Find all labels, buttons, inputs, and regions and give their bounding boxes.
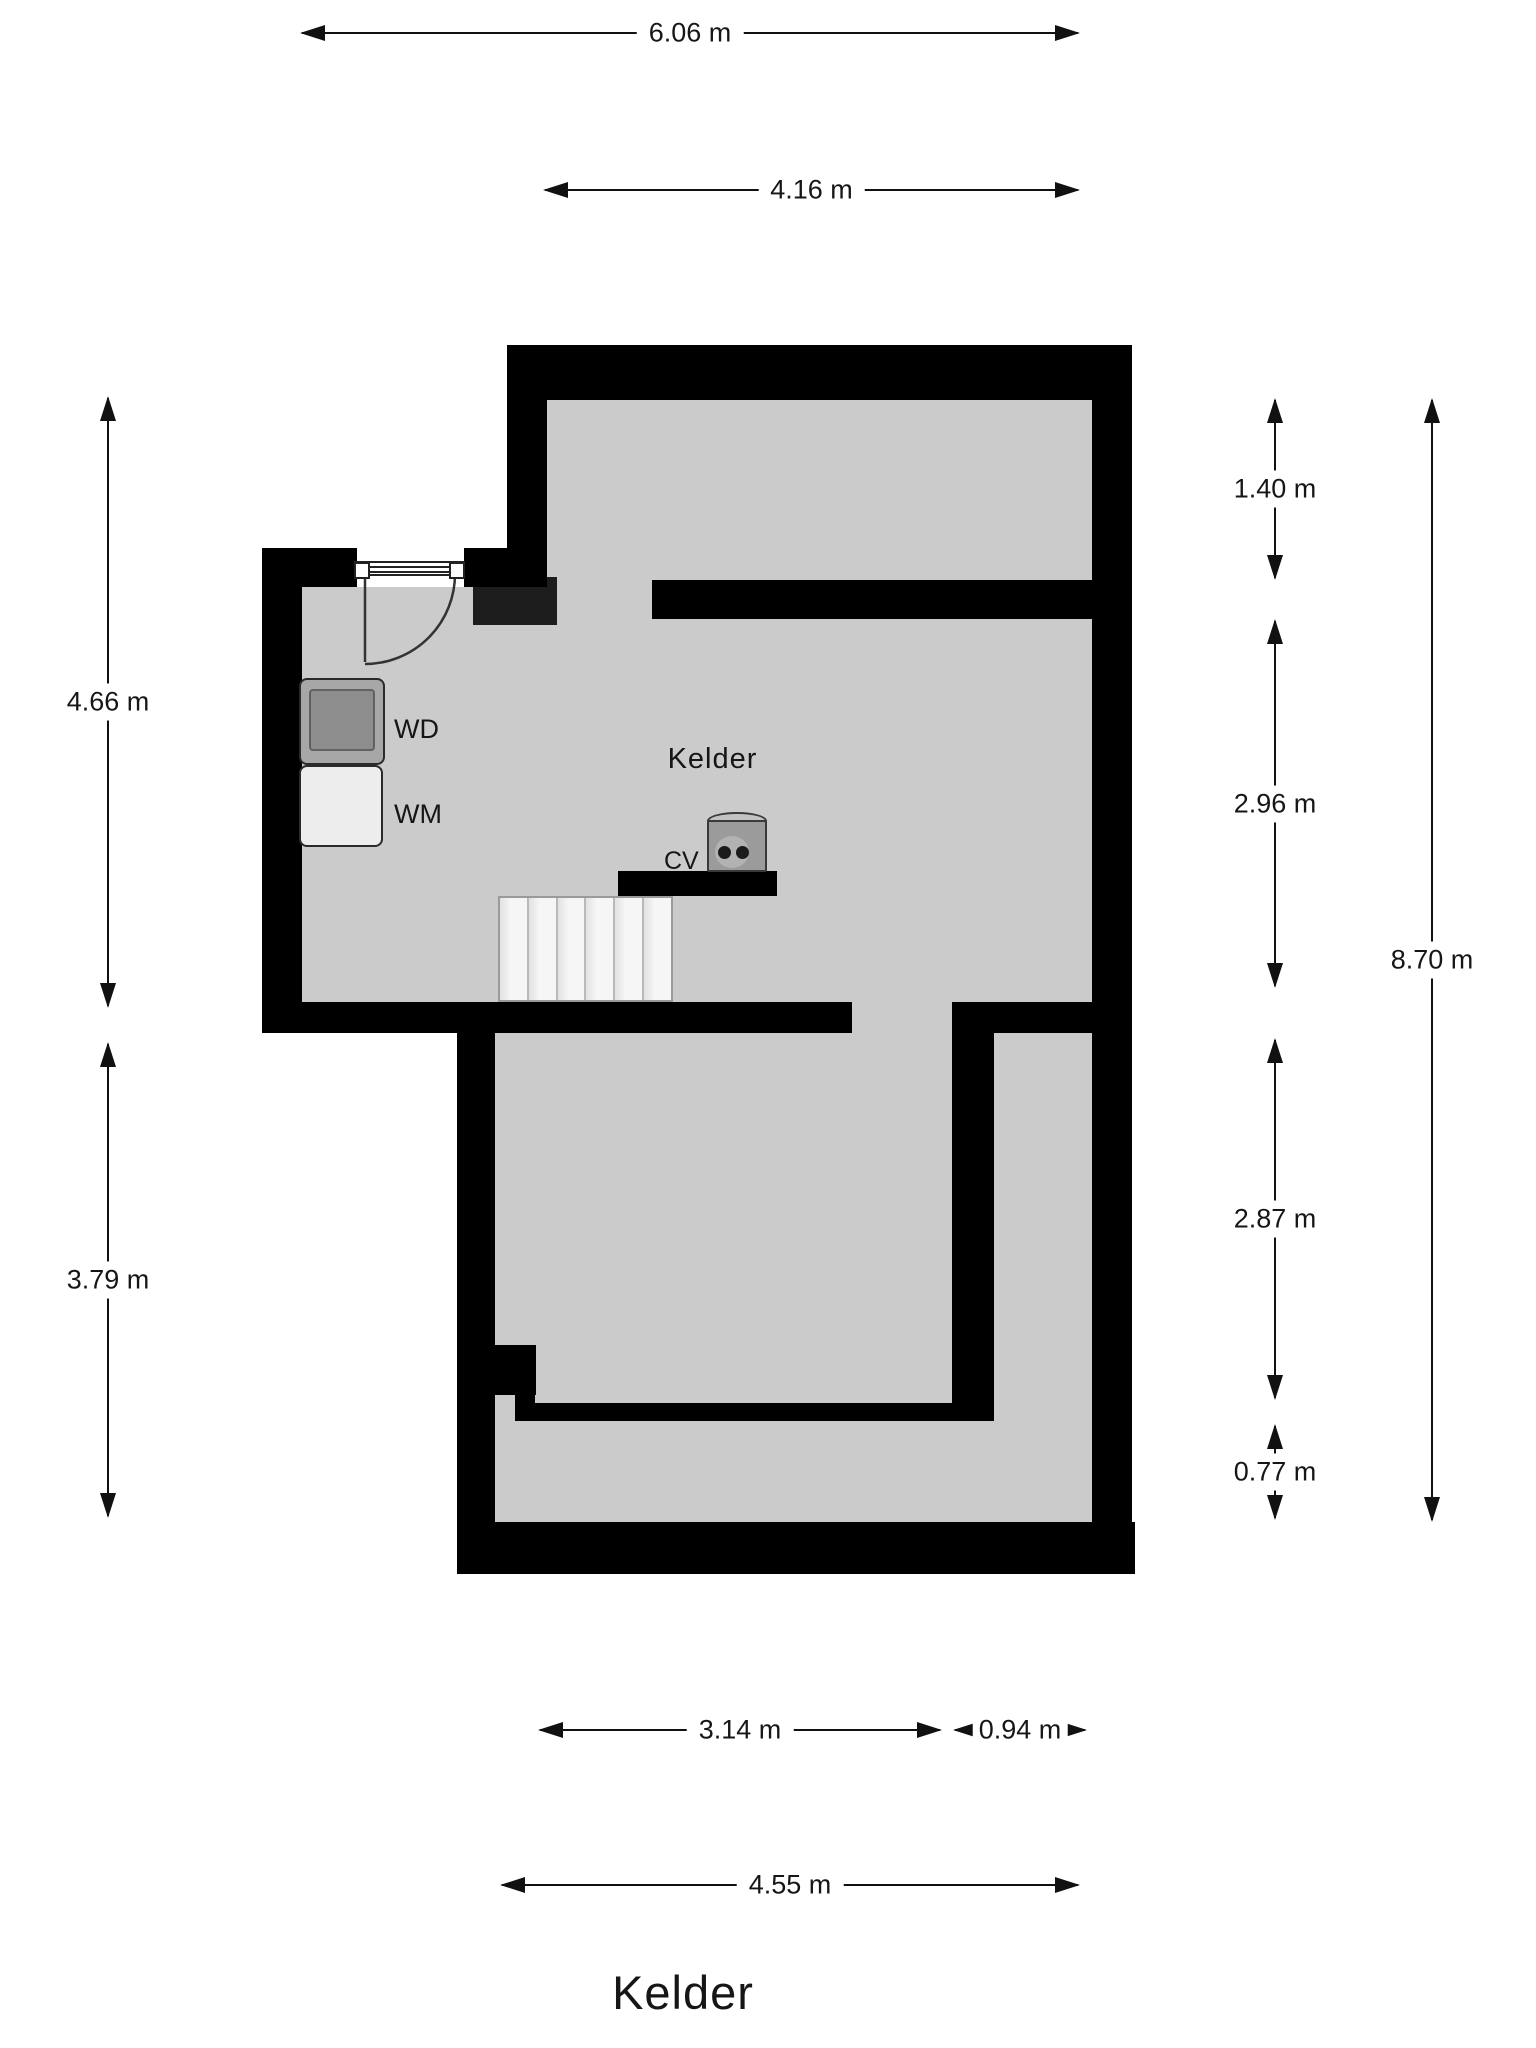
boiler-label: CV bbox=[664, 847, 699, 876]
dimension-label: 4.55 m bbox=[737, 1867, 844, 1904]
wall-top bbox=[507, 345, 1132, 400]
washing-machine-label: WM bbox=[394, 799, 442, 830]
floor-doorway-gap bbox=[852, 1002, 952, 1033]
dimension-label: 4.66 m bbox=[55, 684, 162, 721]
door-jamb-icon bbox=[449, 562, 465, 579]
dimension-right-3: 2.87 m bbox=[1274, 1040, 1276, 1398]
dimension-left-upper: 4.66 m bbox=[107, 398, 109, 1006]
dimension-left-lower: 3.79 m bbox=[107, 1044, 109, 1516]
dimension-label: 0.94 m bbox=[973, 1712, 1068, 1749]
door-jamb-icon bbox=[354, 562, 370, 579]
dimension-label: 0.77 m bbox=[1222, 1454, 1329, 1491]
wall-lower-left bbox=[457, 1002, 495, 1574]
dimension-label: 2.96 m bbox=[1222, 785, 1329, 822]
floor-lower-room bbox=[495, 1033, 1092, 1522]
dimension-label: 1.40 m bbox=[1222, 471, 1329, 508]
washer-dryer-drum-icon bbox=[309, 689, 375, 751]
dimension-label: 2.87 m bbox=[1222, 1201, 1329, 1238]
boiler-knob-icon bbox=[718, 846, 731, 859]
floorplan-canvas: WD WM CV Kelder Kelder 6.06 m 4.16 m 4.6… bbox=[0, 0, 1536, 2048]
dimension-right-1: 1.40 m bbox=[1274, 400, 1276, 578]
door-frame bbox=[354, 561, 465, 576]
dimension-right-total: 8.70 m bbox=[1431, 400, 1433, 1520]
page-title: Kelder bbox=[533, 1965, 833, 2020]
washer-dryer-label: WD bbox=[394, 714, 439, 745]
door-frame-line bbox=[356, 566, 463, 568]
stair-tread bbox=[586, 898, 615, 1000]
dimension-label: 4.16 m bbox=[758, 172, 865, 209]
dimension-right-4: 0.77 m bbox=[1274, 1426, 1276, 1518]
stair-tread bbox=[529, 898, 558, 1000]
wall-inner-right bbox=[952, 1002, 994, 1421]
dimension-right-2: 2.96 m bbox=[1274, 621, 1276, 986]
stairs bbox=[498, 896, 673, 1002]
dimension-label: 8.70 m bbox=[1379, 942, 1486, 979]
dimension-top-upper-room: 4.16 m bbox=[545, 189, 1078, 191]
washing-machine-unit bbox=[299, 765, 383, 847]
wall-notch bbox=[488, 1345, 536, 1395]
wall-inner-left-thin bbox=[515, 1393, 535, 1421]
dimension-bottom-corridor: 0.94 m bbox=[955, 1729, 1085, 1731]
dimension-bottom-total: 4.55 m bbox=[502, 1884, 1078, 1886]
stair-tread bbox=[500, 898, 529, 1000]
wall-middle-horizontal bbox=[262, 1002, 852, 1033]
stair-tread bbox=[558, 898, 587, 1000]
stair-tread bbox=[644, 898, 671, 1000]
dimension-label: 3.79 m bbox=[55, 1262, 162, 1299]
wall-divider-upper bbox=[652, 580, 1092, 619]
washer-dryer-unit bbox=[299, 678, 385, 765]
room-label: Kelder bbox=[640, 743, 785, 776]
dimension-label: 3.14 m bbox=[687, 1712, 794, 1749]
stair-tread bbox=[615, 898, 644, 1000]
dimension-label: 6.06 m bbox=[637, 15, 744, 52]
dimension-top-total: 6.06 m bbox=[302, 32, 1078, 34]
boiler-knob-icon bbox=[736, 846, 749, 859]
dimension-bottom-inner: 3.14 m bbox=[540, 1729, 940, 1731]
wall-right bbox=[1092, 345, 1132, 1574]
wall-bottom bbox=[457, 1522, 1135, 1574]
door-frame-line bbox=[356, 571, 463, 573]
wall-inner-bottom bbox=[517, 1403, 994, 1421]
